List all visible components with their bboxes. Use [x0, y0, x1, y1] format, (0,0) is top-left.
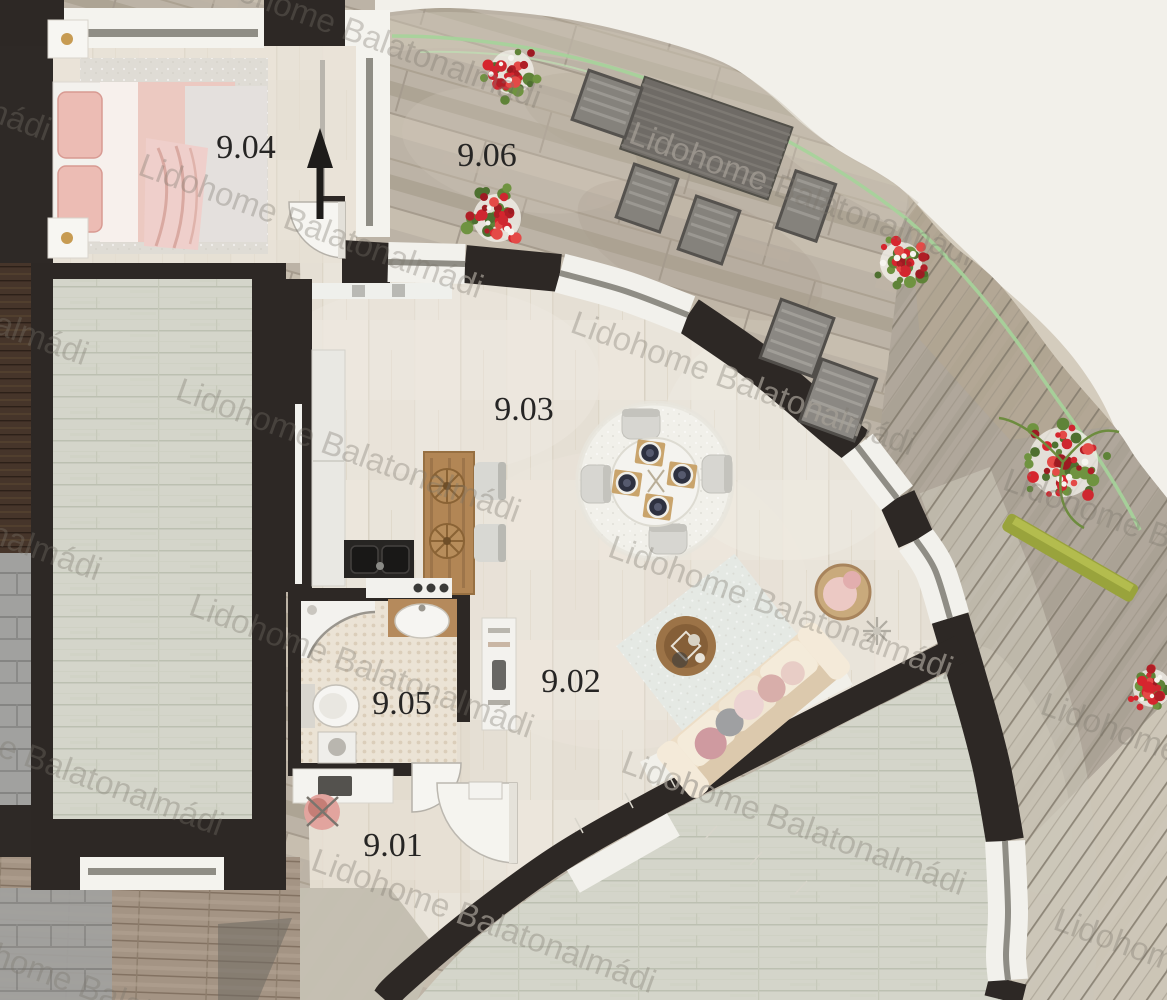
svg-text:9.02: 9.02 [541, 663, 601, 700]
svg-text:9.03: 9.03 [494, 391, 554, 428]
svg-text:9.06: 9.06 [457, 137, 517, 174]
svg-text:9.01: 9.01 [363, 827, 423, 864]
svg-text:9.05: 9.05 [372, 685, 432, 722]
svg-text:9.04: 9.04 [216, 129, 276, 166]
